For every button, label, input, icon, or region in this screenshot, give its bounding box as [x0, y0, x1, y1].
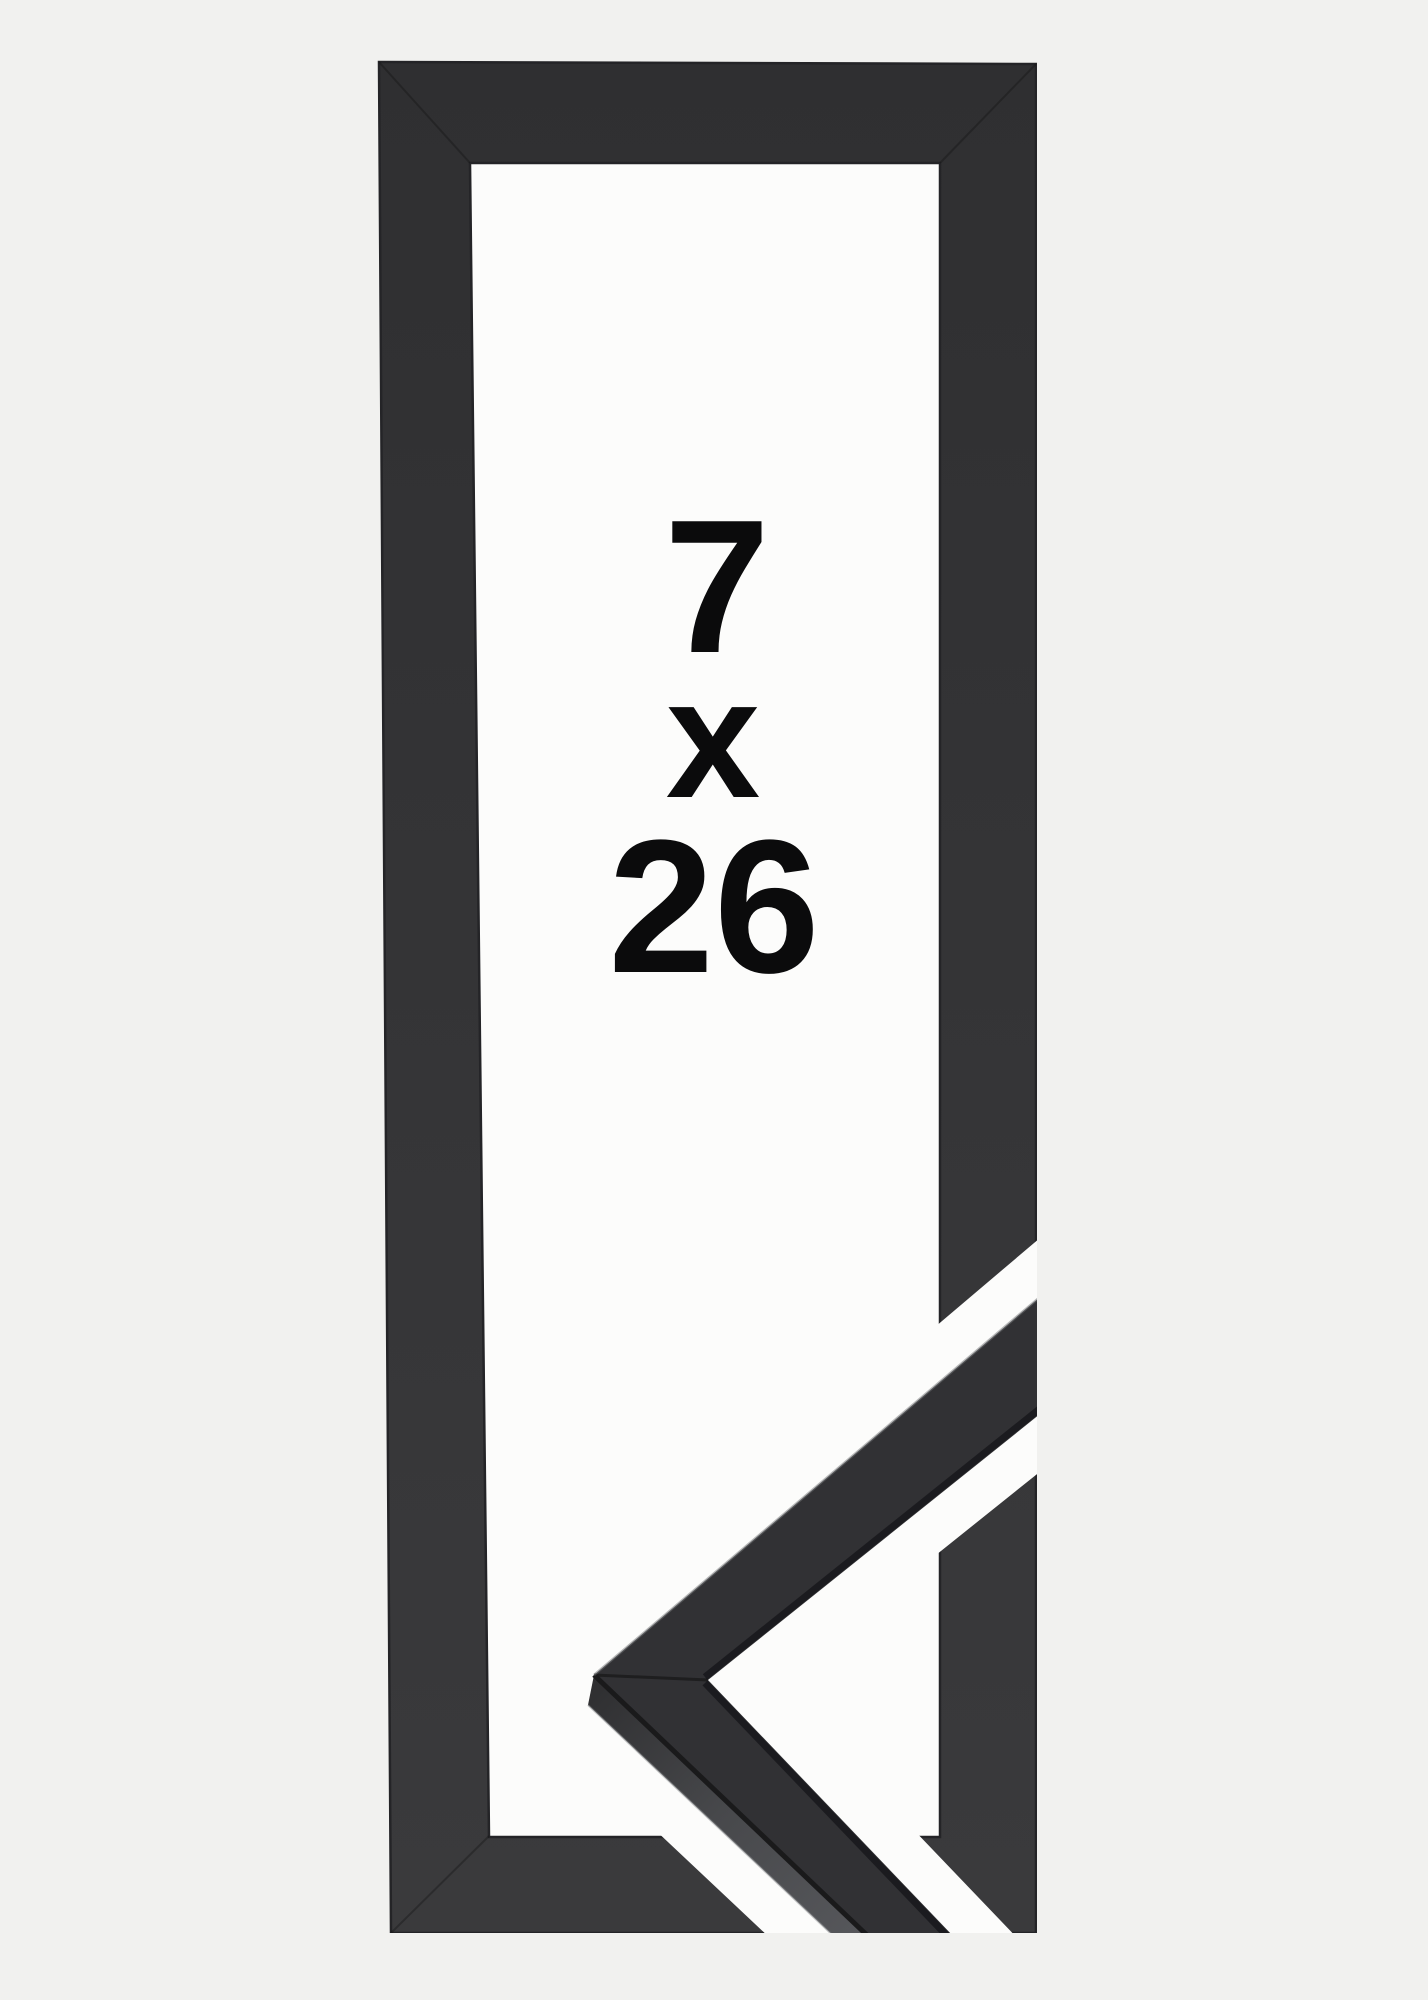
size-height-text: 26: [608, 801, 819, 1013]
frame-artwork: 7 x 26: [0, 0, 1428, 2000]
product-photo: 7 x 26: [0, 0, 1428, 2000]
